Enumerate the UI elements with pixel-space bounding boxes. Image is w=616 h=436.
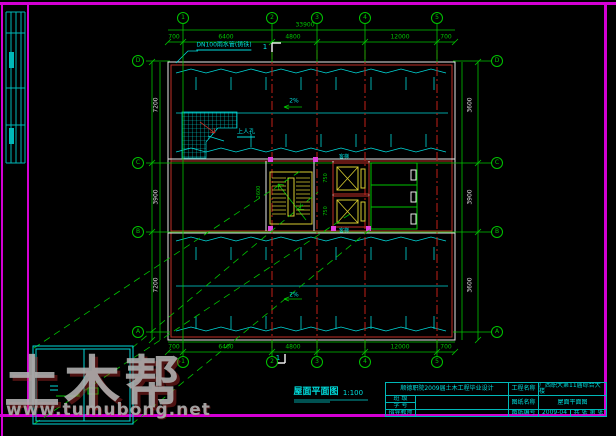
dim-text: 12000 xyxy=(390,344,409,351)
roof-hatch-label: 上人孔 xyxy=(237,129,255,138)
dim-text: 12000 xyxy=(390,34,409,41)
dim-text: 6400 xyxy=(218,34,233,41)
axis-bubble: 4 xyxy=(359,356,371,368)
title-block-sheet-no: 2009-04 xyxy=(538,409,571,417)
dim-text: 7200 xyxy=(153,97,160,112)
dim-text: 700 xyxy=(168,34,179,41)
dim-text: 3600 xyxy=(467,97,474,112)
dim-text: 2600 xyxy=(256,186,262,199)
title-block-empty-cell xyxy=(415,395,509,410)
rain-pipe-label: DN100雨水管(铸铁) xyxy=(196,42,251,51)
axis-bubble: 4 xyxy=(359,12,371,24)
title-block-school: 顺德职院2009届土木工程毕业设计 xyxy=(385,382,509,396)
dim-text: 700 xyxy=(440,34,451,41)
section-number-top: 1 xyxy=(263,43,267,51)
signature-strip-table xyxy=(6,12,25,163)
axis-bubble: 5 xyxy=(431,356,443,368)
elevator-shafts xyxy=(333,163,369,227)
axis-bubble: B xyxy=(491,226,503,238)
title-block-sheetname-label: 图纸名称 xyxy=(508,395,539,410)
axis-bubble: A xyxy=(491,326,503,338)
section-marks xyxy=(272,43,285,363)
dim-text: 3900 xyxy=(153,189,160,204)
elevator-label-top: 客梯 xyxy=(339,154,349,160)
axis-bubble: 3 xyxy=(311,12,323,24)
dim-text: 750 xyxy=(323,173,329,183)
dim-text: 3900 xyxy=(467,189,474,204)
axis-bubble: 5 xyxy=(431,12,443,24)
slope-label-bottom: 2% xyxy=(289,292,299,299)
dim-text: 4800 xyxy=(285,344,300,351)
axis-bubble: 3 xyxy=(311,356,323,368)
axis-bubble: A xyxy=(132,326,144,338)
title-block-sheetno-label: 图纸编号 xyxy=(508,409,539,417)
title-block-advisor-label: 指导教师 xyxy=(385,409,416,417)
title-block-pages: 共 张 第 张 xyxy=(570,409,607,417)
axis-bubble: 1 xyxy=(177,12,189,24)
axis-bubble: 2 xyxy=(266,12,278,24)
dim-text: 750 xyxy=(323,206,329,216)
elevator-label-bottom: 客梯 xyxy=(339,228,349,234)
watermark-url: www.tumubong.net xyxy=(6,400,211,420)
plan-title: 屋面平面图 xyxy=(293,387,338,397)
dim-text: 4800 xyxy=(285,34,300,41)
dim-total-top: 33900 xyxy=(295,22,314,29)
dim-text: 3600 xyxy=(467,277,474,292)
axis-bubble: C xyxy=(491,157,503,169)
dim-text: 700 xyxy=(440,344,451,351)
axis-bubble: 2 xyxy=(266,356,278,368)
axis-bubble: B xyxy=(132,226,144,238)
axis-bubble: C xyxy=(132,157,144,169)
dim-text: 6400 xyxy=(218,344,233,351)
title-block-project-name: 广西职大第11届综合大楼 xyxy=(538,382,607,396)
stair-up-label: 上 xyxy=(298,203,305,211)
title-block-project-label: 工程名称 xyxy=(508,382,539,396)
dimension-chains xyxy=(146,22,492,358)
cad-drawing-canvas[interactable]: DN100雨水管(铸铁) 上人孔 2% 2% 客梯 客梯 上 1 1 屋面平面图… xyxy=(0,0,616,436)
title-block-sheet-name: 屋面平面图 xyxy=(538,395,607,410)
dim-text: 7200 xyxy=(153,277,160,292)
slope-label-top: 2% xyxy=(289,98,299,105)
title-block-empty-cell xyxy=(415,409,509,417)
axis-bubble: D xyxy=(132,55,144,67)
axis-bubble: D xyxy=(491,55,503,67)
core-side-room xyxy=(371,163,417,229)
plan-scale: 1:100 xyxy=(343,389,363,397)
